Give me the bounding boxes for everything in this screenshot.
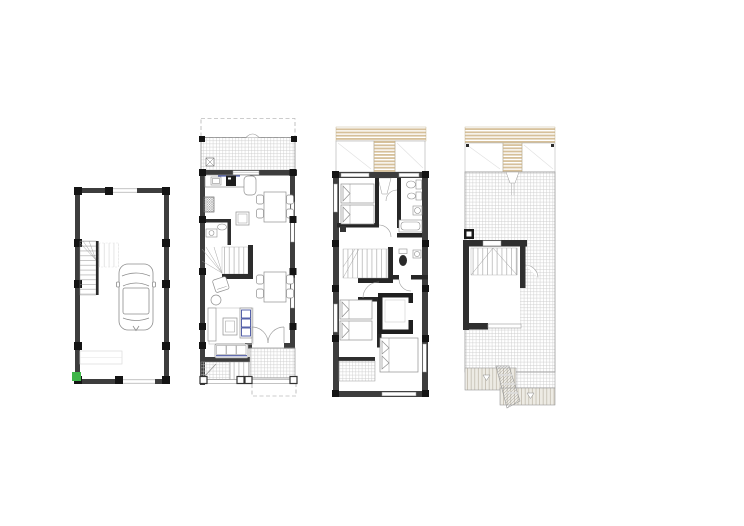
chair-icon [287, 195, 294, 204]
walk-in-closet [378, 293, 413, 334]
basement-garage-plan [75, 188, 169, 384]
staircase-icon [80, 241, 119, 295]
car-icon [117, 264, 156, 331]
window [334, 304, 338, 332]
bed-icon [341, 184, 374, 203]
staircase-icon [202, 245, 253, 279]
bathroom-2 [399, 249, 421, 266]
dining-table-icon [257, 192, 294, 222]
bedroom-3 [380, 338, 418, 372]
roof-terrace-plan [463, 125, 557, 408]
toilet-icon [399, 255, 407, 266]
door-swing-icon [246, 134, 259, 138]
sofa-icon [215, 344, 248, 358]
pergola-slats [465, 127, 555, 143]
first-floor-plan [333, 122, 428, 397]
bidet-icon [408, 192, 422, 200]
funnel [378, 178, 391, 194]
washbasin-icon [218, 224, 227, 230]
dashed-extension [252, 384, 296, 396]
french-doors-icon [252, 327, 284, 343]
chaise-icon [208, 308, 216, 341]
toilet-icon [407, 180, 422, 189]
window [423, 344, 427, 372]
window [341, 173, 369, 177]
service-box-icon [464, 229, 474, 239]
balcony-tiles [339, 361, 375, 381]
chair-icon [257, 195, 264, 204]
toilet-icon [206, 229, 217, 237]
pergola [465, 127, 555, 172]
fridge-icon [244, 176, 256, 195]
green-corner-marker [72, 372, 81, 381]
dashed-plot-line [201, 119, 295, 138]
bed-icon [380, 338, 418, 372]
kitchen-island [236, 212, 249, 225]
coffee-table-icon [223, 318, 237, 335]
front-terrace-tiles [201, 134, 295, 171]
chair-icon [257, 289, 264, 298]
ground-floor-plan [200, 118, 297, 398]
window [488, 324, 521, 328]
side-table-icon [211, 295, 221, 305]
bathtub-icon [399, 220, 422, 232]
ramp-edge-lines [80, 351, 122, 364]
pergola-slats [336, 127, 426, 141]
living-room [208, 276, 253, 358]
staircase-icon [343, 249, 388, 278]
bathroom-1 [399, 180, 422, 232]
chair-icon [257, 209, 264, 218]
stove-icon [226, 176, 236, 187]
dining-table-icon [257, 272, 294, 302]
staircase-icon [471, 248, 517, 275]
pergola-slats [503, 143, 522, 172]
pergola-slats [374, 141, 395, 172]
balcony [338, 357, 375, 381]
window [334, 184, 338, 212]
floor-plans-canvas [0, 0, 744, 526]
bed-icon [341, 205, 374, 224]
drain-symbol [206, 158, 214, 166]
toilet-icon [399, 249, 407, 254]
chair-icon [257, 275, 264, 284]
nightstand-icon [340, 226, 346, 232]
washbasin-icon [413, 250, 421, 258]
bedroom-2 [340, 300, 372, 340]
tv-cabinet-icon [240, 308, 252, 338]
window [399, 173, 419, 177]
window [382, 392, 416, 396]
patio-tiles [250, 348, 295, 378]
bed-icon [340, 300, 372, 319]
bed-icon [340, 321, 372, 340]
service-shaft [204, 197, 214, 212]
kitchen [204, 175, 256, 225]
washbasin-icon [413, 206, 422, 215]
chair-icon [287, 289, 294, 298]
chair-icon [287, 275, 294, 284]
window [483, 241, 501, 246]
